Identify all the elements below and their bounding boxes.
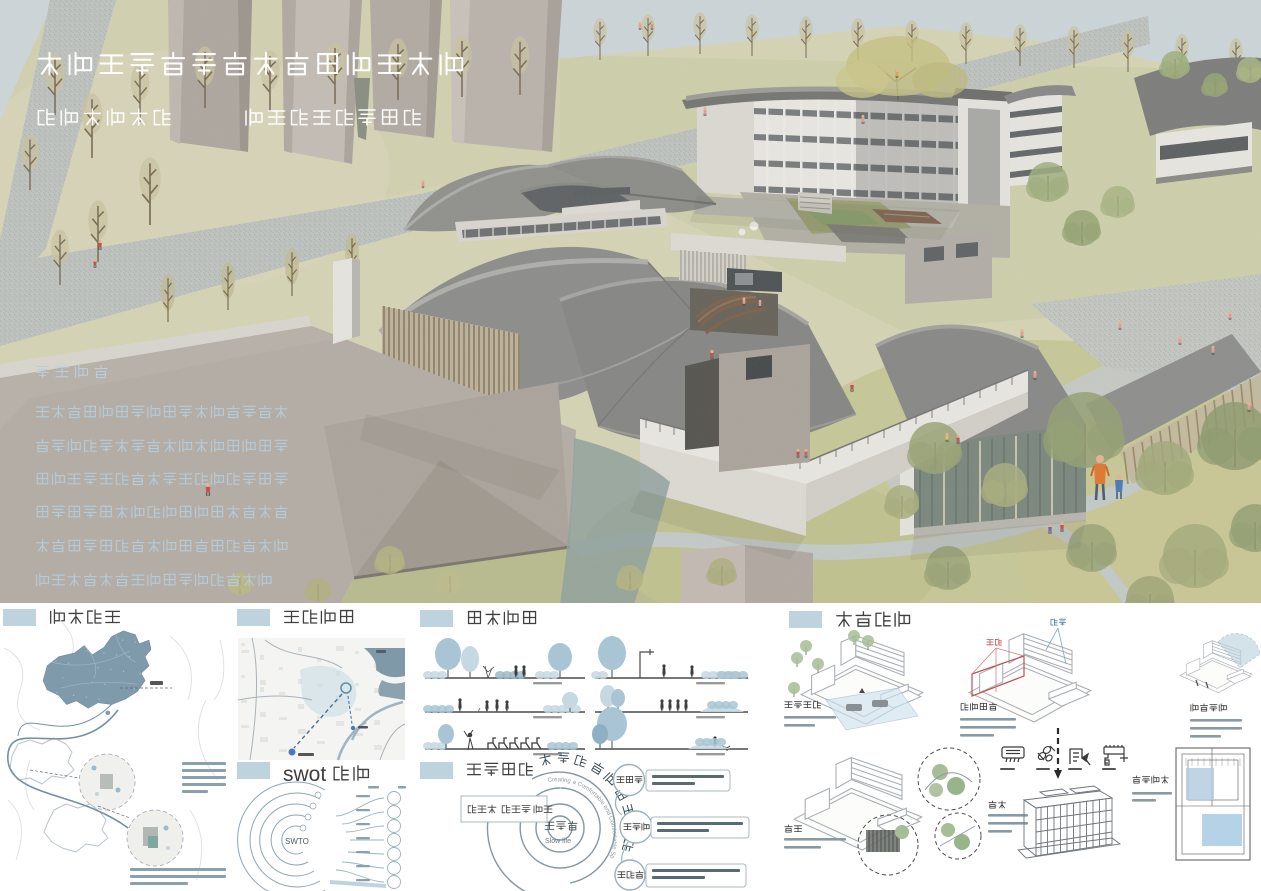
svg-text:Slow life: Slow life — [545, 838, 571, 845]
svg-text:SWTO: SWTO — [285, 837, 309, 846]
